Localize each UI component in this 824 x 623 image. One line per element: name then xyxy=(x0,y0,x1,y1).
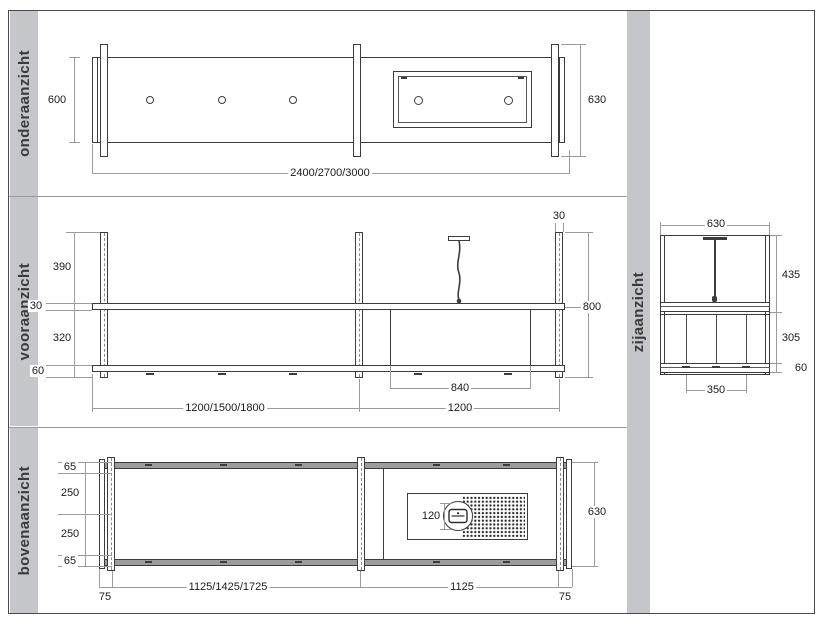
pendant-cord-icon xyxy=(714,240,716,300)
dim-label: 60 xyxy=(793,362,809,374)
foot-mark xyxy=(682,366,690,368)
extension-line xyxy=(660,222,661,235)
dim-label: 630 xyxy=(705,218,727,230)
box-side-line xyxy=(746,314,747,363)
dimension-line xyxy=(776,235,777,373)
foot-mark xyxy=(742,366,750,368)
view-zijaanzicht: 630 435 305 60 350 xyxy=(0,0,824,623)
dim-label: 305 xyxy=(780,332,802,344)
extension-line xyxy=(769,222,770,235)
technical-drawing-sheet: onderaanzicht vooraanzicht bovenaanzicht… xyxy=(0,0,824,623)
foot-mark xyxy=(712,366,720,368)
shelf-band-top xyxy=(661,302,769,312)
dim-label: 435 xyxy=(780,269,802,281)
shelf-band-bottom xyxy=(661,363,769,373)
box-side-line xyxy=(686,314,687,363)
dim-label: 350 xyxy=(705,384,727,396)
shelf-trim-line xyxy=(661,314,769,315)
box-side-line xyxy=(716,314,717,363)
